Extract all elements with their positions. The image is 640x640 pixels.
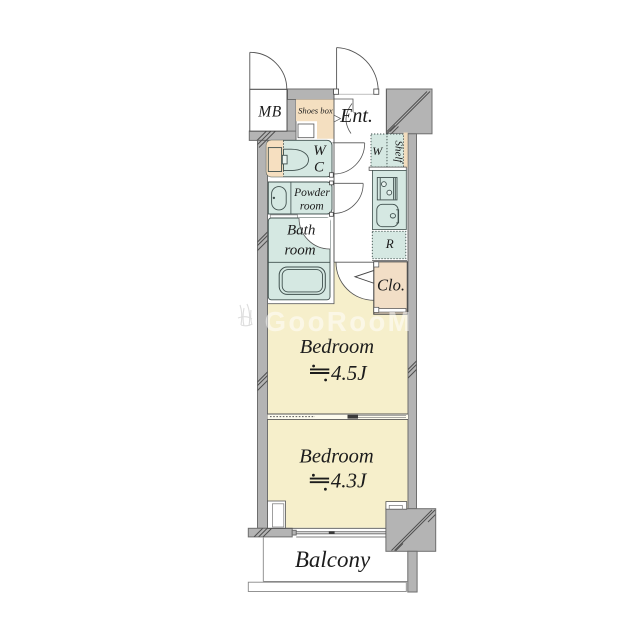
svg-text:Shoes box: Shoes box bbox=[298, 106, 333, 116]
svg-text:Bedroom: Bedroom bbox=[299, 445, 373, 467]
svg-text:Bath: Bath bbox=[287, 223, 315, 239]
svg-text:4.3J: 4.3J bbox=[331, 469, 368, 493]
svg-text:Ent.: Ent. bbox=[339, 105, 373, 127]
svg-text:Balcony: Balcony bbox=[295, 547, 371, 572]
svg-text:Clo.: Clo. bbox=[377, 275, 405, 294]
svg-text:MB: MB bbox=[257, 104, 281, 121]
svg-text:W: W bbox=[313, 143, 327, 159]
svg-text:4.5J: 4.5J bbox=[331, 361, 368, 385]
svg-text:Shelf: Shelf bbox=[393, 141, 405, 165]
svg-text:Bedroom: Bedroom bbox=[300, 336, 374, 358]
svg-text:Powder: Powder bbox=[293, 187, 330, 199]
svg-text:R: R bbox=[385, 236, 394, 251]
svg-text:W: W bbox=[372, 144, 383, 158]
svg-text:room: room bbox=[284, 242, 315, 258]
svg-text:room: room bbox=[300, 200, 324, 212]
svg-text:C: C bbox=[314, 159, 325, 175]
